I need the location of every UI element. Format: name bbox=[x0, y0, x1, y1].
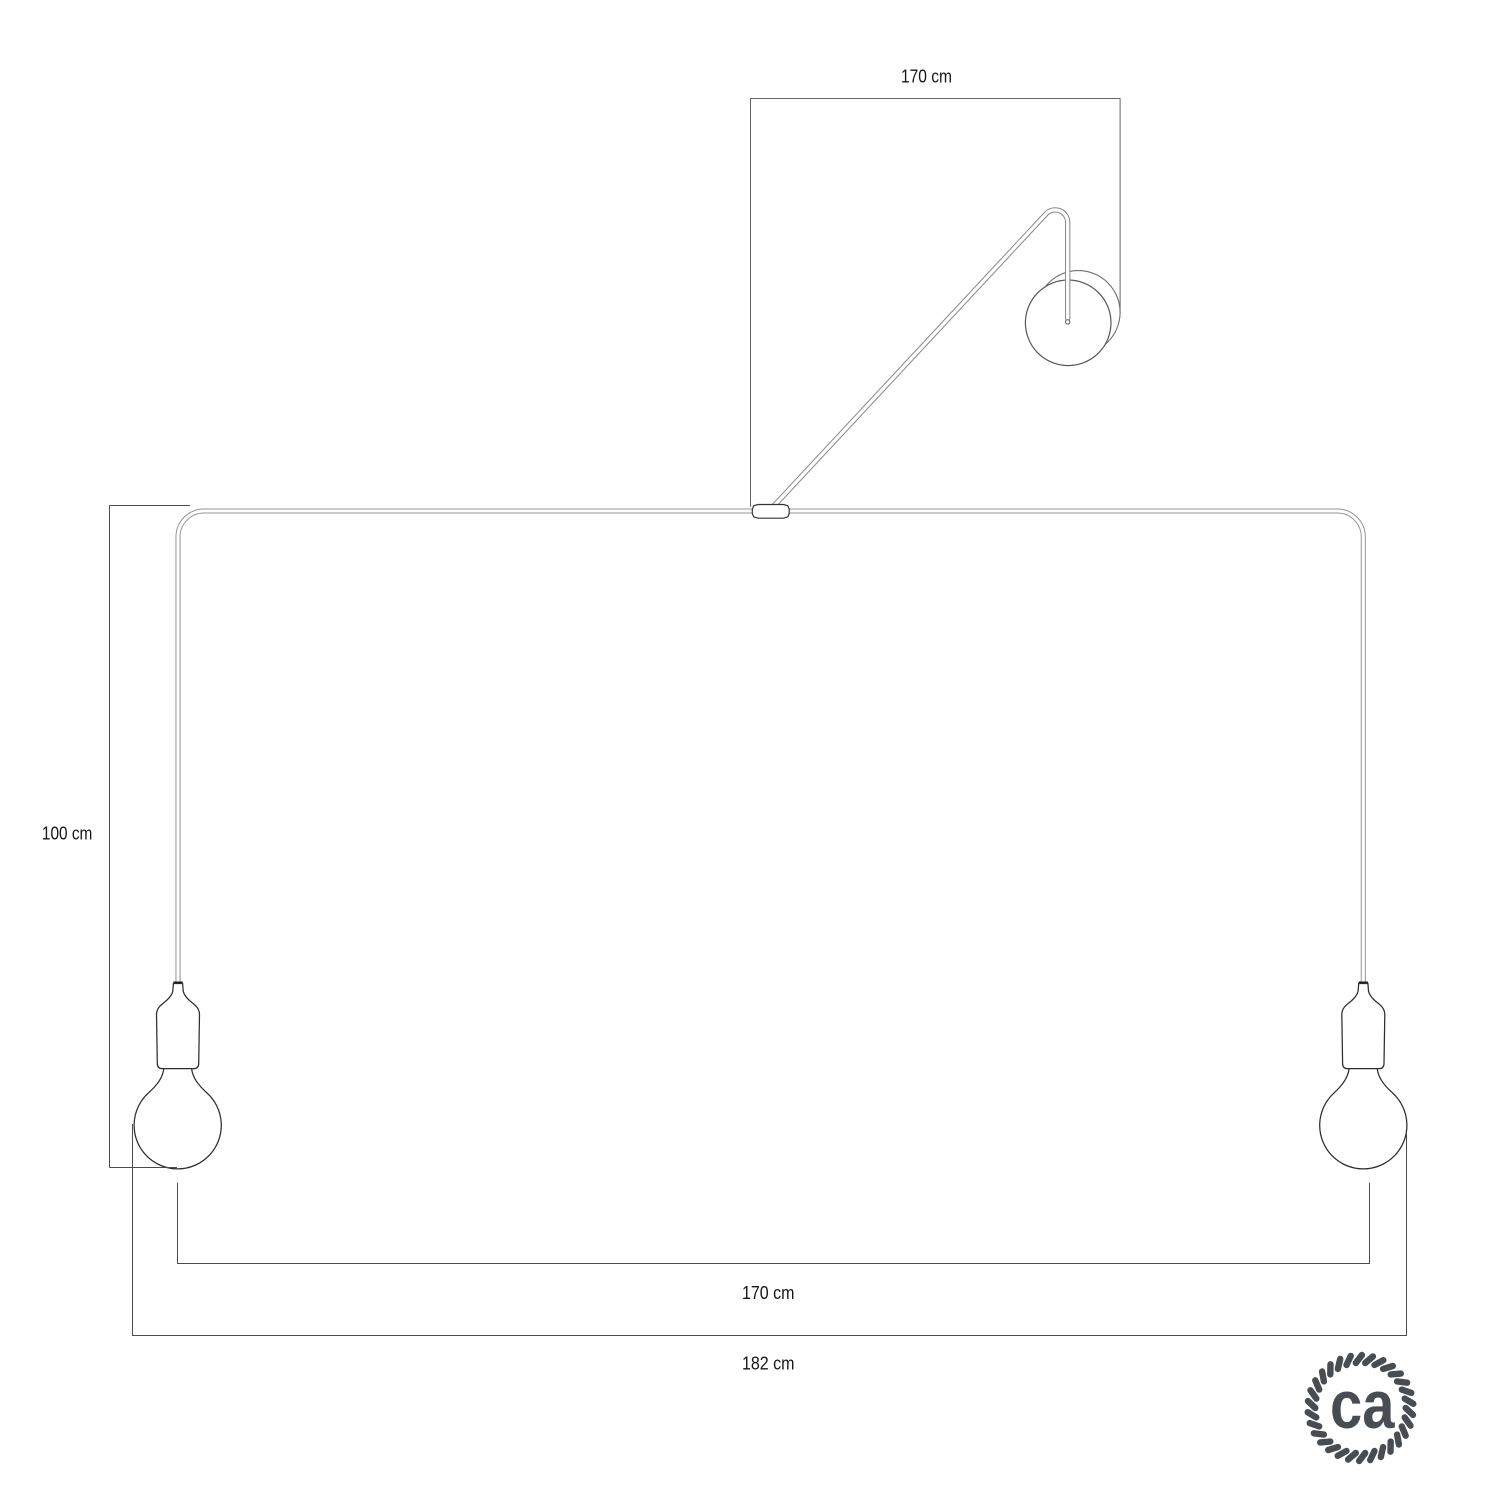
svg-text:182 cm: 182 cm bbox=[742, 1353, 795, 1374]
svg-text:170 cm: 170 cm bbox=[901, 66, 952, 87]
svg-text:100 cm: 100 cm bbox=[42, 823, 93, 844]
svg-text:ca: ca bbox=[1330, 1367, 1396, 1443]
svg-text:170 cm: 170 cm bbox=[742, 1282, 795, 1303]
